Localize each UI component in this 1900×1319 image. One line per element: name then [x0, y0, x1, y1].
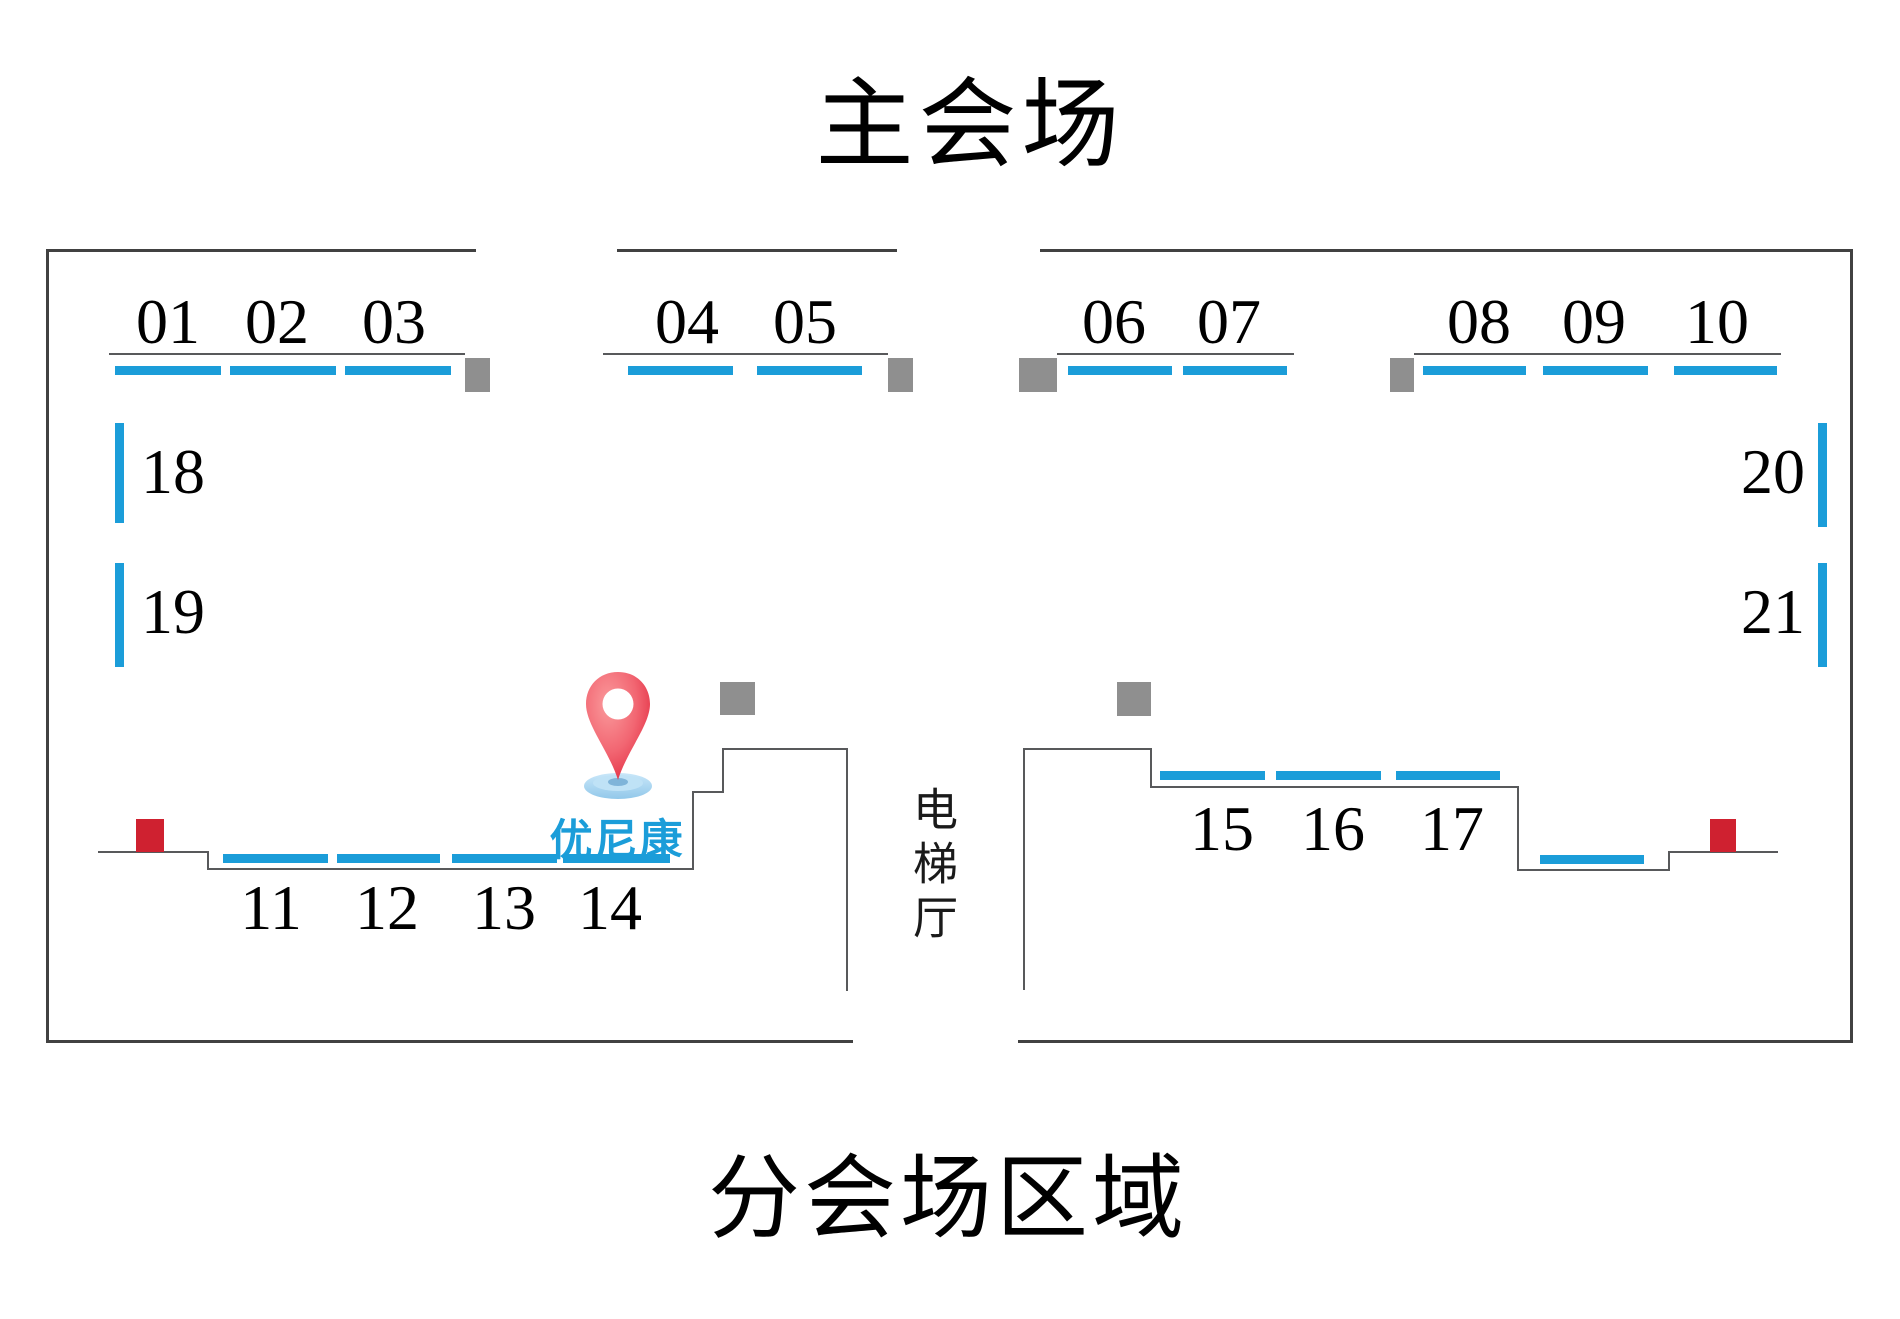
inner-wall-segment: [207, 868, 694, 870]
booth-label-10: 10: [1685, 290, 1749, 354]
pin-body: [586, 672, 650, 780]
outer-wall-segment: [1850, 249, 1853, 1043]
inner-wall-segment: [1150, 786, 1518, 788]
booth-bar-05: [757, 366, 862, 375]
booth-bar-12: [337, 854, 440, 863]
booth-label-13: 13: [472, 876, 536, 940]
outer-wall-segment: [1040, 249, 1853, 252]
elevator-hall-label: 电梯厅: [908, 786, 953, 948]
booth-bar-02: [230, 366, 336, 375]
booth-label-17: 17: [1420, 797, 1484, 861]
booth-label-06: 06: [1082, 290, 1146, 354]
outer-wall-segment: [46, 1040, 853, 1043]
pillar-block: [888, 358, 913, 392]
booth-bar-08: [1423, 366, 1526, 375]
pillar-block: [465, 358, 490, 392]
inner-wall-segment: [722, 750, 724, 793]
pillar-block: [1117, 682, 1151, 716]
inner-wall-segment: [1668, 851, 1670, 871]
footer-title: 分会场区域: [708, 1124, 1188, 1257]
booth-label-04: 04: [655, 290, 719, 354]
booth-bar-18: [115, 423, 124, 523]
booth-label-08: 08: [1447, 290, 1511, 354]
outer-wall-segment: [617, 249, 897, 252]
page-title: 主会场: [815, 45, 1124, 187]
booth-bar-09: [1543, 366, 1648, 375]
booth-label-15: 15: [1190, 797, 1254, 861]
booth-bar-14: [563, 854, 670, 863]
venue-floorplan: 主会场 电梯厅 优尼康 分会场区域 0102030405060708091018…: [0, 0, 1900, 1319]
booth-label-11: 11: [240, 876, 302, 940]
outer-wall-segment: [46, 249, 476, 252]
booth-bar-03: [345, 366, 451, 375]
booth-bar-19: [115, 563, 124, 667]
booth-bar-07: [1183, 366, 1287, 375]
inner-wall-segment: [722, 748, 848, 750]
pillar-block: [1019, 358, 1057, 392]
booth-bar-11: [223, 854, 328, 863]
location-pin-icon: [573, 666, 663, 802]
booth-label-20: 20: [1741, 440, 1805, 504]
booth-bar-20: [1818, 423, 1827, 527]
booth-bar-16: [1276, 771, 1381, 780]
inner-wall-segment: [692, 793, 694, 870]
inner-wall-segment: [1517, 869, 1670, 871]
pillar-block: [720, 682, 755, 715]
booth-bar-13: [452, 854, 557, 863]
booth-label-19: 19: [141, 580, 205, 644]
pillar-block: [1390, 358, 1414, 392]
booth-label-16: 16: [1301, 797, 1365, 861]
inner-wall-segment: [1023, 750, 1025, 990]
booth-label-09: 09: [1562, 290, 1626, 354]
inner-wall-segment: [603, 353, 888, 355]
fire-hydrant-block: [1710, 819, 1736, 852]
booth-bar-04: [628, 366, 733, 375]
inner-wall-segment: [692, 791, 724, 793]
booth-bar-17: [1396, 771, 1500, 780]
booth-label-05: 05: [773, 290, 837, 354]
outer-wall-segment: [46, 249, 49, 1043]
pin-hole: [603, 689, 634, 720]
booth-label-01: 01: [136, 290, 200, 354]
inner-wall-segment: [1517, 786, 1519, 871]
booth-bar-01: [115, 366, 221, 375]
booth-label-21: 21: [1741, 580, 1805, 644]
fire-hydrant-block: [136, 819, 164, 852]
booth-label-14: 14: [578, 876, 642, 940]
inner-wall-segment: [1150, 748, 1152, 788]
inner-wall-segment: [846, 750, 848, 991]
booth-bar-15: [1160, 771, 1265, 780]
booth-label-12: 12: [355, 876, 419, 940]
booth-bar-06: [1068, 366, 1172, 375]
booth-bar-21: [1818, 563, 1827, 667]
booth-bar-unlabeled: [1540, 855, 1644, 864]
booth-label-07: 07: [1197, 290, 1261, 354]
booth-label-03: 03: [362, 290, 426, 354]
inner-wall-segment: [1023, 748, 1152, 750]
outer-wall-segment: [1018, 1040, 1853, 1043]
booth-label-18: 18: [141, 440, 205, 504]
booth-label-02: 02: [245, 290, 309, 354]
booth-bar-10: [1674, 366, 1777, 375]
